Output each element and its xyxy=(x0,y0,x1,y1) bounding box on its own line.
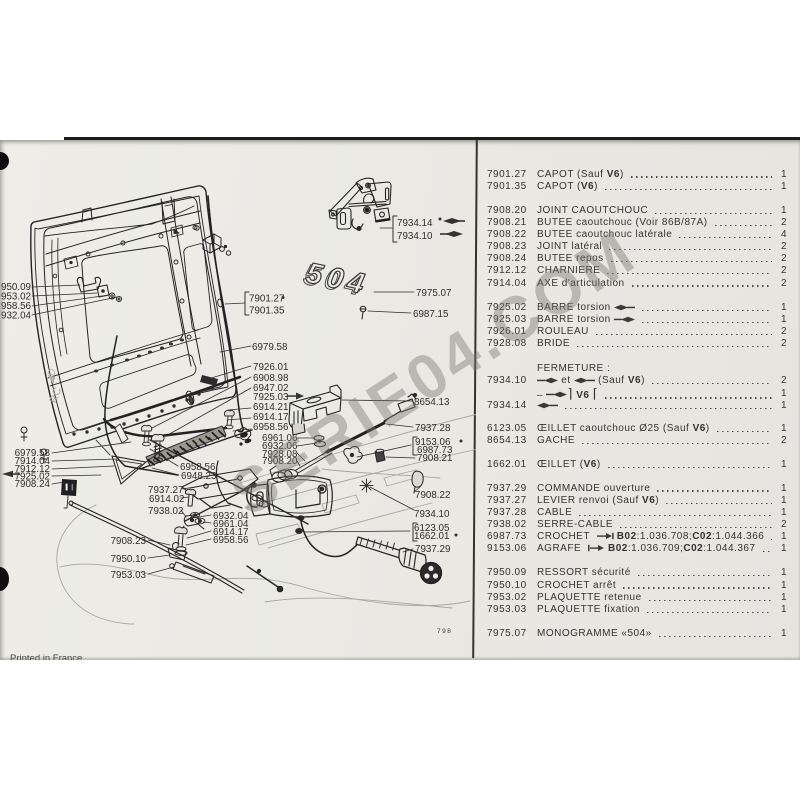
svg-text:◢D: ◢D xyxy=(44,368,58,385)
svg-text:8654.13: 8654.13 xyxy=(414,397,450,408)
svg-text:7934.10: 7934.10 xyxy=(397,231,433,242)
svg-text:932.04: 932.04 xyxy=(1,311,32,322)
svg-text:7950.10: 7950.10 xyxy=(111,554,147,565)
svg-text:7908.20: 7908.20 xyxy=(262,456,298,467)
svg-text:6979.58: 6979.58 xyxy=(252,342,288,353)
svg-text:504: 504 xyxy=(303,257,372,301)
svg-text:7938.02: 7938.02 xyxy=(148,506,183,517)
svg-text:6948.23: 6948.23 xyxy=(181,471,217,482)
svg-text:7934.14: 7934.14 xyxy=(397,218,433,229)
svg-text:7975.07: 7975.07 xyxy=(416,288,451,299)
svg-text:6958.56: 6958.56 xyxy=(213,535,249,546)
svg-text:7901.35: 7901.35 xyxy=(249,306,285,317)
svg-text:6987.15: 6987.15 xyxy=(413,309,449,320)
svg-text:1662.01: 1662.01 xyxy=(414,531,449,542)
svg-text:7937.28: 7937.28 xyxy=(415,423,451,434)
svg-text:7937.29: 7937.29 xyxy=(415,544,450,555)
svg-text:7908.23: 7908.23 xyxy=(111,536,147,547)
svg-text:6914.02: 6914.02 xyxy=(149,494,184,505)
svg-text:7926.01: 7926.01 xyxy=(253,362,288,373)
svg-text:7908.21: 7908.21 xyxy=(417,453,452,464)
svg-text:6958.56: 6958.56 xyxy=(253,422,289,433)
svg-text:7953.03: 7953.03 xyxy=(111,570,147,581)
svg-text:7901.27: 7901.27 xyxy=(249,294,284,305)
svg-text:7908.22: 7908.22 xyxy=(415,490,450,501)
svg-text:7908.24: 7908.24 xyxy=(15,479,51,490)
svg-text:7934.10: 7934.10 xyxy=(414,509,450,520)
